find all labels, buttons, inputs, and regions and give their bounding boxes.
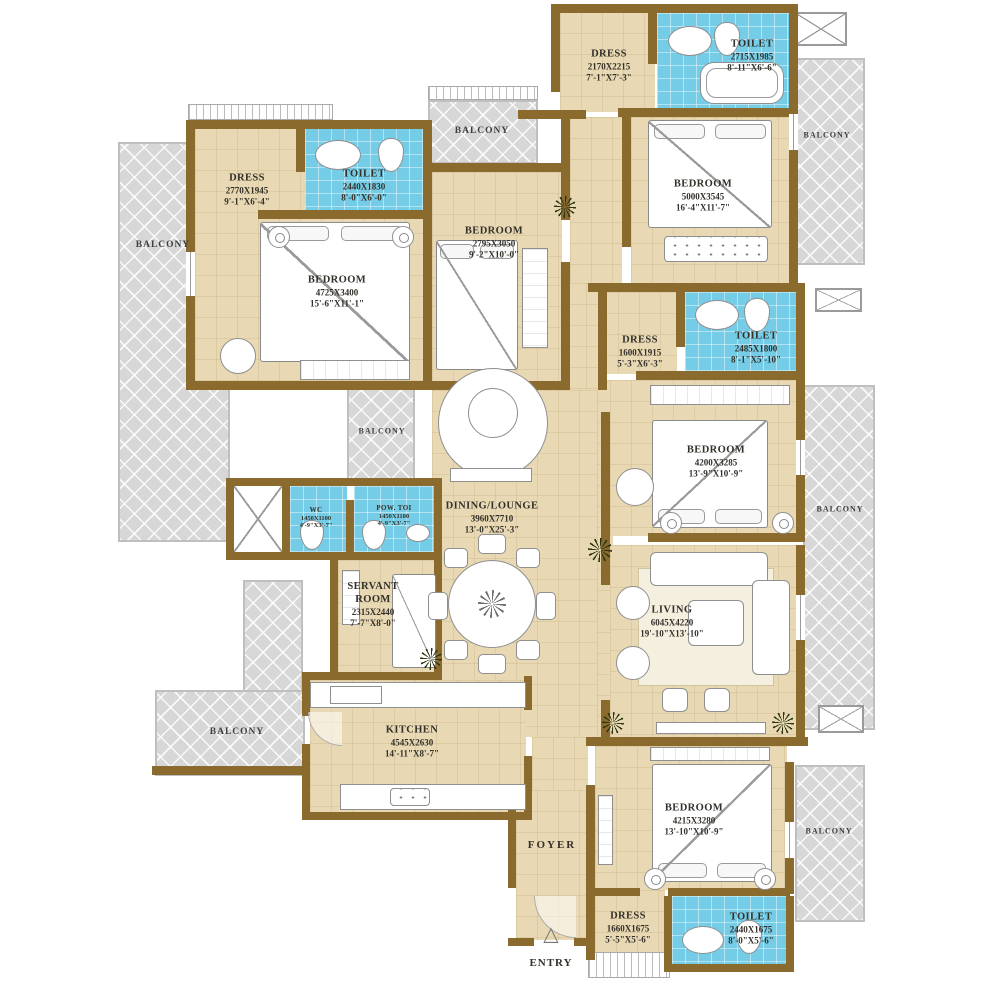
wall bbox=[290, 552, 442, 560]
wall bbox=[282, 483, 290, 558]
console-table bbox=[450, 468, 532, 482]
dining-chair bbox=[444, 640, 468, 660]
wall bbox=[785, 762, 794, 822]
wall bbox=[664, 896, 672, 968]
wall bbox=[434, 478, 442, 560]
speaker-symbol bbox=[660, 512, 682, 534]
label-bedroom-top-left: BEDROOM4725X340015'-6"X11'-1" bbox=[308, 275, 366, 310]
wall bbox=[789, 4, 798, 114]
wall bbox=[423, 163, 570, 172]
label-servant-room: SERVANT ROOM2315X24407'-7"X8'-0" bbox=[334, 581, 412, 629]
wall bbox=[796, 292, 805, 380]
foyer-label: FOYER bbox=[528, 839, 577, 851]
wall bbox=[586, 785, 595, 960]
window bbox=[789, 114, 798, 150]
wall bbox=[561, 262, 570, 390]
balcony-top-right bbox=[795, 58, 865, 265]
label-kitchen: KITCHEN4545X263014'-11"X8'-7" bbox=[385, 725, 439, 760]
dining-chair bbox=[536, 592, 556, 620]
balcony-right bbox=[803, 385, 875, 730]
wall bbox=[664, 964, 794, 972]
balcony-label: BALCONY bbox=[805, 827, 852, 836]
wall bbox=[648, 4, 657, 64]
service-shaft bbox=[818, 705, 864, 733]
label-bedroom-top-middle: BEDROOM2795X30509'-2"X10'-0" bbox=[465, 226, 523, 261]
label-dress-top-left: DRESS2770X19459'-1"X6'-4" bbox=[224, 173, 270, 208]
speaker-symbol bbox=[268, 226, 290, 248]
plant bbox=[602, 712, 624, 734]
wall bbox=[423, 120, 432, 390]
wall bbox=[346, 500, 354, 558]
wall bbox=[302, 812, 532, 820]
wall bbox=[676, 292, 685, 347]
speaker-symbol bbox=[392, 226, 414, 248]
bench bbox=[664, 236, 768, 262]
washbasin bbox=[682, 926, 724, 954]
wall bbox=[226, 552, 290, 560]
washbasin bbox=[668, 26, 712, 56]
wall bbox=[796, 380, 805, 440]
wall bbox=[601, 412, 610, 545]
plant bbox=[588, 538, 612, 562]
wall bbox=[636, 371, 805, 380]
wall bbox=[789, 150, 798, 287]
wall bbox=[186, 120, 195, 252]
dining-chair bbox=[478, 534, 506, 554]
plant bbox=[554, 196, 576, 218]
label-bedroom-top-right: BEDROOM5000X354516'-4"X11'-7" bbox=[674, 179, 732, 214]
wall bbox=[302, 672, 310, 716]
wardrobe bbox=[650, 385, 790, 405]
service-shaft bbox=[795, 12, 847, 46]
wall bbox=[622, 117, 631, 247]
wall bbox=[226, 478, 234, 560]
dining-chair bbox=[444, 548, 468, 568]
label-toilet-bottom: TOILET2440X16758'-0"X5'-6" bbox=[728, 912, 774, 947]
label-toilet-top-right: TOILET2715X19858'-11"X6'-6" bbox=[727, 39, 777, 74]
service-shaft bbox=[232, 484, 284, 554]
label-bedroom-mid-right: BEDROOM4200X328513'-9"X10'-9" bbox=[687, 445, 745, 480]
wall bbox=[586, 737, 808, 746]
hob bbox=[390, 788, 430, 806]
speaker-symbol bbox=[772, 512, 794, 534]
label-living: LIVING6045X422019'-10"X13'-10" bbox=[640, 605, 704, 640]
entry-label: ENTRY bbox=[529, 957, 572, 969]
wall bbox=[618, 108, 798, 117]
wardrobe bbox=[650, 747, 770, 761]
window-ledge bbox=[588, 952, 670, 978]
wall bbox=[796, 640, 805, 745]
wall bbox=[152, 766, 307, 775]
floor-connector bbox=[565, 283, 601, 390]
wall bbox=[296, 120, 305, 172]
label-wc: WC1450X11004'-9"X3'-7" bbox=[300, 506, 333, 530]
balcony-label: BALCONY bbox=[136, 240, 191, 250]
speaker-symbol bbox=[754, 868, 776, 890]
wall bbox=[796, 475, 805, 535]
floor-corridor-top bbox=[570, 117, 622, 287]
armchair bbox=[616, 646, 650, 680]
wall bbox=[588, 888, 640, 896]
wall bbox=[668, 888, 790, 896]
wall bbox=[796, 545, 805, 595]
balcony-bottom-right bbox=[795, 765, 865, 922]
wall bbox=[226, 478, 442, 486]
label-toilet-mid-right: TOILET2485X18008'-1"X5'-10" bbox=[731, 331, 781, 366]
balcony-label: BALCONY bbox=[358, 427, 405, 436]
armchair bbox=[616, 468, 654, 506]
dining-chair bbox=[516, 548, 540, 568]
wall bbox=[302, 672, 442, 680]
window-ledge bbox=[428, 86, 538, 100]
washbasin bbox=[315, 140, 361, 170]
label-toilet-top-left: TOILET2440X18308'-0"X6'-0" bbox=[341, 169, 387, 204]
window bbox=[796, 440, 805, 475]
label-dress-mid-right: DRESS1600X19155'-3"X6'-3" bbox=[617, 335, 663, 370]
pouf bbox=[662, 688, 688, 712]
floor-plan: DRESS2770X19459'-1"X6'-4" TOILET2440X183… bbox=[0, 0, 1000, 1000]
kitchen-counter bbox=[340, 784, 526, 810]
balcony-label: BALCONY bbox=[816, 505, 863, 514]
speaker-symbol bbox=[644, 868, 666, 890]
kitchen-sink bbox=[330, 686, 382, 704]
plant bbox=[420, 648, 442, 670]
label-pow-toi: POW. TOI1450X11004'-9"X3'-7" bbox=[376, 504, 411, 528]
shoe-cabinet bbox=[598, 795, 613, 865]
armchair bbox=[220, 338, 256, 374]
wall bbox=[551, 4, 663, 13]
sofa bbox=[650, 552, 768, 586]
wall bbox=[598, 292, 607, 390]
window-ledge bbox=[188, 104, 333, 120]
wall bbox=[302, 744, 310, 820]
wall bbox=[508, 938, 534, 946]
wardrobe bbox=[300, 360, 410, 380]
plant bbox=[772, 712, 794, 734]
balcony-label: BALCONY bbox=[803, 131, 850, 140]
floor-corridor-bottom bbox=[532, 737, 588, 797]
wall bbox=[786, 896, 794, 972]
wardrobe bbox=[522, 248, 548, 348]
window bbox=[186, 252, 195, 296]
balcony-label: BALCONY bbox=[455, 126, 510, 136]
service-shaft bbox=[815, 288, 862, 312]
dining-chair bbox=[478, 654, 506, 674]
label-dining: DINING/LOUNGE3960X771013'-0"X25'-3" bbox=[446, 501, 539, 536]
label-dress-top-middle: DRESS2170X22157'-1"X7'-3" bbox=[586, 49, 632, 84]
label-dress-bottom: DRESS1660X16755'-5"X5'-6" bbox=[605, 911, 651, 946]
window bbox=[785, 822, 794, 858]
wall bbox=[588, 283, 805, 292]
wall bbox=[186, 296, 195, 390]
wall bbox=[551, 4, 560, 92]
pouf bbox=[704, 688, 730, 712]
wall bbox=[518, 110, 586, 119]
sofa-side bbox=[752, 580, 790, 675]
wall bbox=[648, 533, 805, 542]
dining-chair bbox=[428, 592, 448, 620]
window bbox=[796, 595, 805, 640]
tv-unit bbox=[656, 722, 766, 734]
table-centerpiece bbox=[478, 590, 506, 618]
balcony-label: BALCONY bbox=[210, 727, 265, 737]
washbasin bbox=[695, 300, 739, 330]
wall bbox=[258, 210, 428, 219]
dining-chair bbox=[516, 640, 540, 660]
entry-arrow-icon: △ bbox=[543, 922, 558, 947]
wall bbox=[186, 120, 432, 129]
lounge-table-round bbox=[468, 388, 518, 438]
label-bedroom-bottom: BEDROOM4215X328013'-10"X10'-9" bbox=[665, 803, 724, 838]
wall bbox=[648, 4, 798, 13]
